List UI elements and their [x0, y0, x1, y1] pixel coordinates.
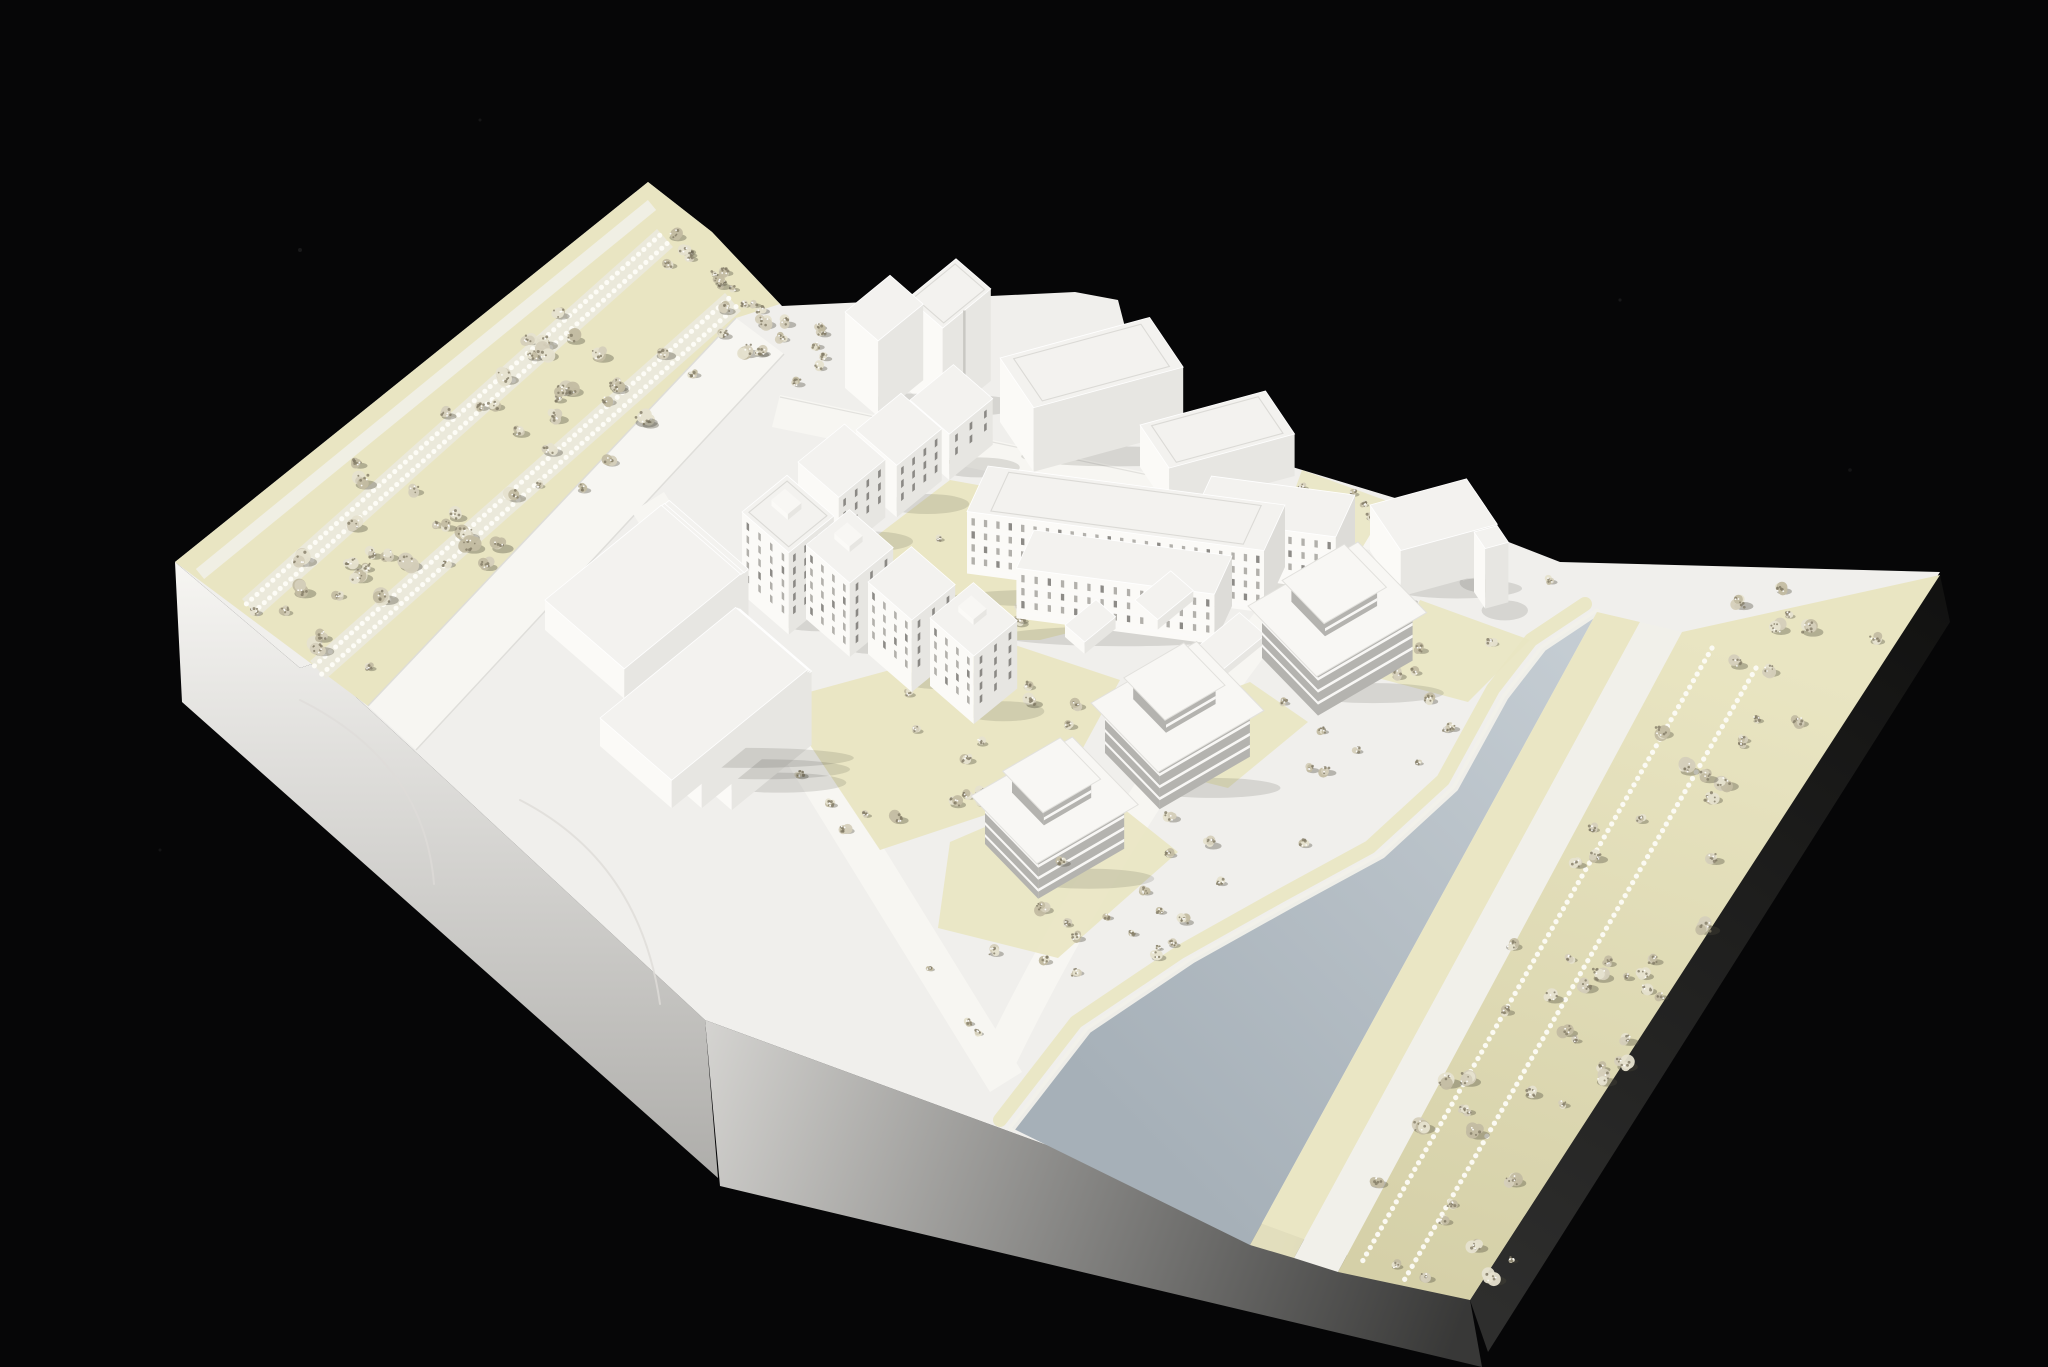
scene-svg	[0, 0, 2048, 1367]
architectural-model-photo	[0, 0, 2048, 1367]
